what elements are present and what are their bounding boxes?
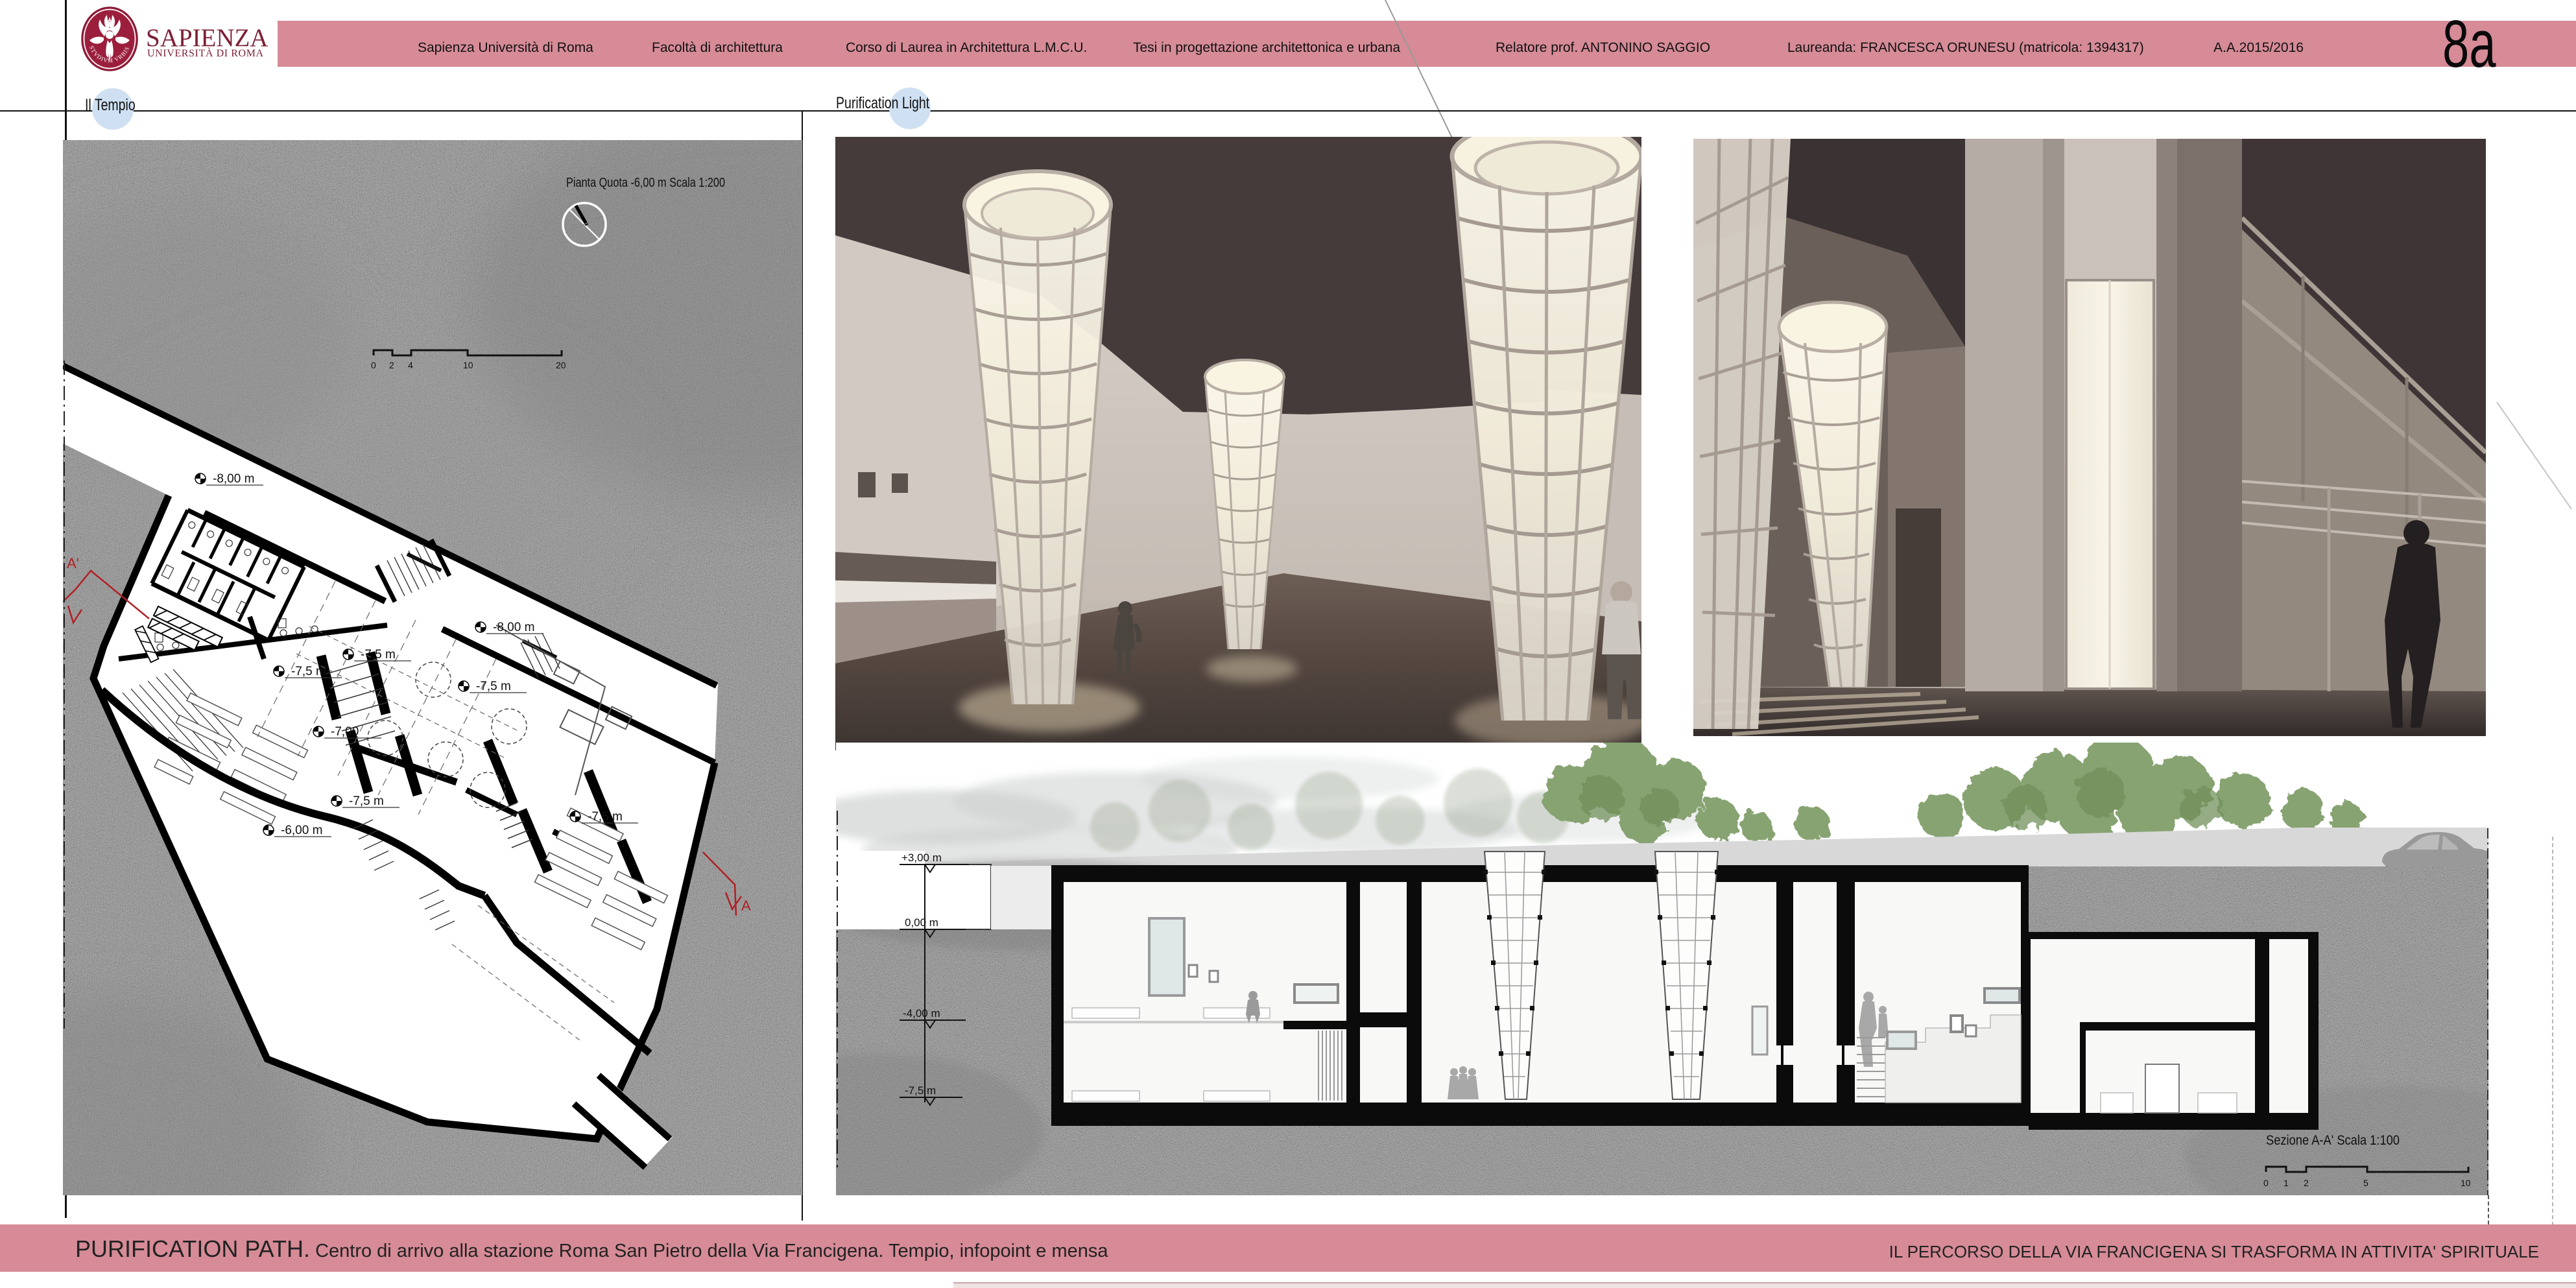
svg-text:0,00 m: 0,00 m <box>905 916 938 929</box>
svg-text:Pianta Quota -6,00 m Scala 1:2: Pianta Quota -6,00 m Scala 1:200 <box>566 176 725 190</box>
svg-text:-8,00 m: -8,00 m <box>493 621 534 634</box>
svg-text:-7,00: -7,00 <box>331 725 359 739</box>
svg-text:-7,5 m: -7,5 m <box>476 680 511 693</box>
svg-text:+3,00 m: +3,00 m <box>901 852 942 864</box>
svg-text:2: 2 <box>2304 1178 2309 1188</box>
svg-text:10: 10 <box>463 360 473 370</box>
svg-text:-4,00 m: -4,00 m <box>903 1007 940 1020</box>
svg-text:20: 20 <box>556 360 566 370</box>
svg-text:-6,00 m: -6,00 m <box>281 824 322 837</box>
svg-text:-7,5 m: -7,5 m <box>361 648 396 662</box>
svg-text:4: 4 <box>408 360 413 370</box>
svg-text:1: 1 <box>2284 1178 2289 1188</box>
svg-text:-7,5 m: -7,5 m <box>588 810 623 824</box>
svg-text:-7,5 m: -7,5 m <box>905 1084 936 1097</box>
svg-text:-7,5 m: -7,5 m <box>291 665 326 678</box>
svg-text:A: A <box>741 898 751 914</box>
svg-text:5: 5 <box>2363 1178 2368 1188</box>
svg-text:-7,5 m: -7,5 m <box>349 794 384 808</box>
svg-text:2: 2 <box>389 360 394 370</box>
svg-text:-8,00 m: -8,00 m <box>213 472 254 486</box>
svg-text:0: 0 <box>371 360 376 370</box>
svg-text:A': A' <box>67 555 79 571</box>
svg-text:0: 0 <box>2263 1178 2269 1188</box>
svg-text:10: 10 <box>2461 1178 2471 1188</box>
svg-text:Sezione A-A' Scala 1:100: Sezione A-A' Scala 1:100 <box>2266 1133 2400 1148</box>
